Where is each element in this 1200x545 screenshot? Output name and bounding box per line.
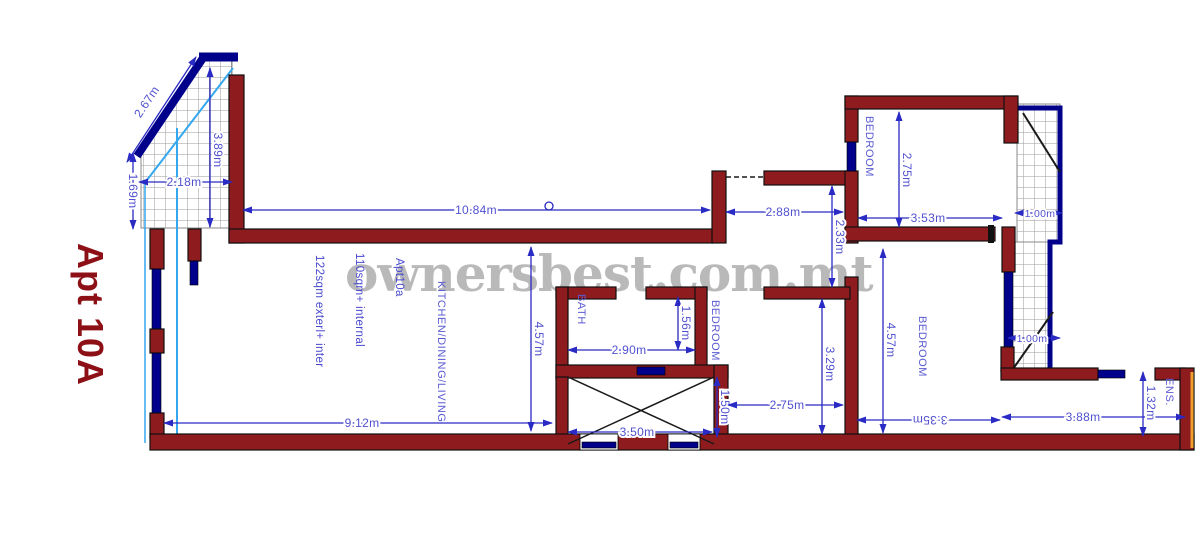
dim-living-bottom: 9.12m xyxy=(345,416,380,430)
window-ens xyxy=(1098,370,1125,378)
dim-balcony-mid-width: 1.00m xyxy=(1017,333,1048,345)
window-left-2 xyxy=(152,353,161,413)
dim-bedroom-right-depth: 4.57m xyxy=(884,323,898,358)
dim-shaft-depth: 1.50m xyxy=(718,390,732,425)
dim-ens-width: 3.88m xyxy=(1066,410,1101,424)
room-label-kitchen: KITCHEN/DINING/LIVING xyxy=(435,281,447,423)
window-bedroom-top xyxy=(847,142,856,171)
dim-terrace-height: 3.89m xyxy=(211,133,225,168)
dim-bath-width: 2.90m xyxy=(612,343,647,357)
room-label-bath: BATH xyxy=(575,294,587,325)
window-bedroom-right xyxy=(1004,272,1013,347)
window-left-1 xyxy=(152,269,161,329)
dim-living-top: 10.84m xyxy=(455,203,497,217)
door-jamb-mark xyxy=(988,225,994,243)
dim-terrace-width: 2.18m xyxy=(167,175,202,189)
room-label-bedroom-mid: BEDROOM xyxy=(709,300,721,361)
dim-bedroom-mid-depth: 3.29m xyxy=(823,347,837,382)
area-note-1: 122sqm exterl+ inter xyxy=(313,255,325,368)
window-bottom-1 xyxy=(582,442,616,448)
floorplan-page: ownersbest.com.mt xyxy=(0,0,1200,545)
dim-balcony-top-width: 1.00m xyxy=(1025,208,1056,220)
window-bottom-2 xyxy=(670,442,698,448)
window-terrace-stub xyxy=(190,261,198,285)
area-note-2: 110sqm+ internal xyxy=(353,253,365,347)
dim-marker-circle xyxy=(545,202,553,210)
dim-bedroom-top-depth: 2.75m xyxy=(900,153,914,188)
room-label-ensuite: ENS. xyxy=(1163,378,1175,406)
room-label-bedroom-top: BEDROOM xyxy=(863,116,875,177)
area-note-3: Apt10a xyxy=(393,258,405,297)
dim-bedroom-right-width: 3.35m xyxy=(913,413,948,427)
room-label-bedroom-right: BEDROOM xyxy=(916,316,928,377)
dim-terrace-side: 1.69m xyxy=(126,174,140,209)
dim-bedroom-top-width: 3.53m xyxy=(911,211,946,225)
dim-hall-width: 2.88m xyxy=(766,205,801,219)
dim-bedroom-mid-width: 2.75m xyxy=(770,398,805,412)
balcony-hatch-top xyxy=(1017,104,1060,242)
window-bath xyxy=(637,367,665,375)
dim-hall-depth: 2.33m xyxy=(833,220,847,255)
dim-ens-depth: 1.32m xyxy=(1144,386,1158,421)
apt-title: Apt 10A xyxy=(70,243,111,386)
dim-shaft-width: 3.50m xyxy=(620,425,655,439)
floorplan-drawing: ownersbest.com.mt xyxy=(0,0,1200,545)
balcony-hatch-bottom xyxy=(1012,242,1050,372)
dim-living-height: 4.57m xyxy=(532,322,546,357)
dim-bath-depth: 1.56m xyxy=(679,306,693,341)
balcony-areas xyxy=(1012,104,1060,372)
